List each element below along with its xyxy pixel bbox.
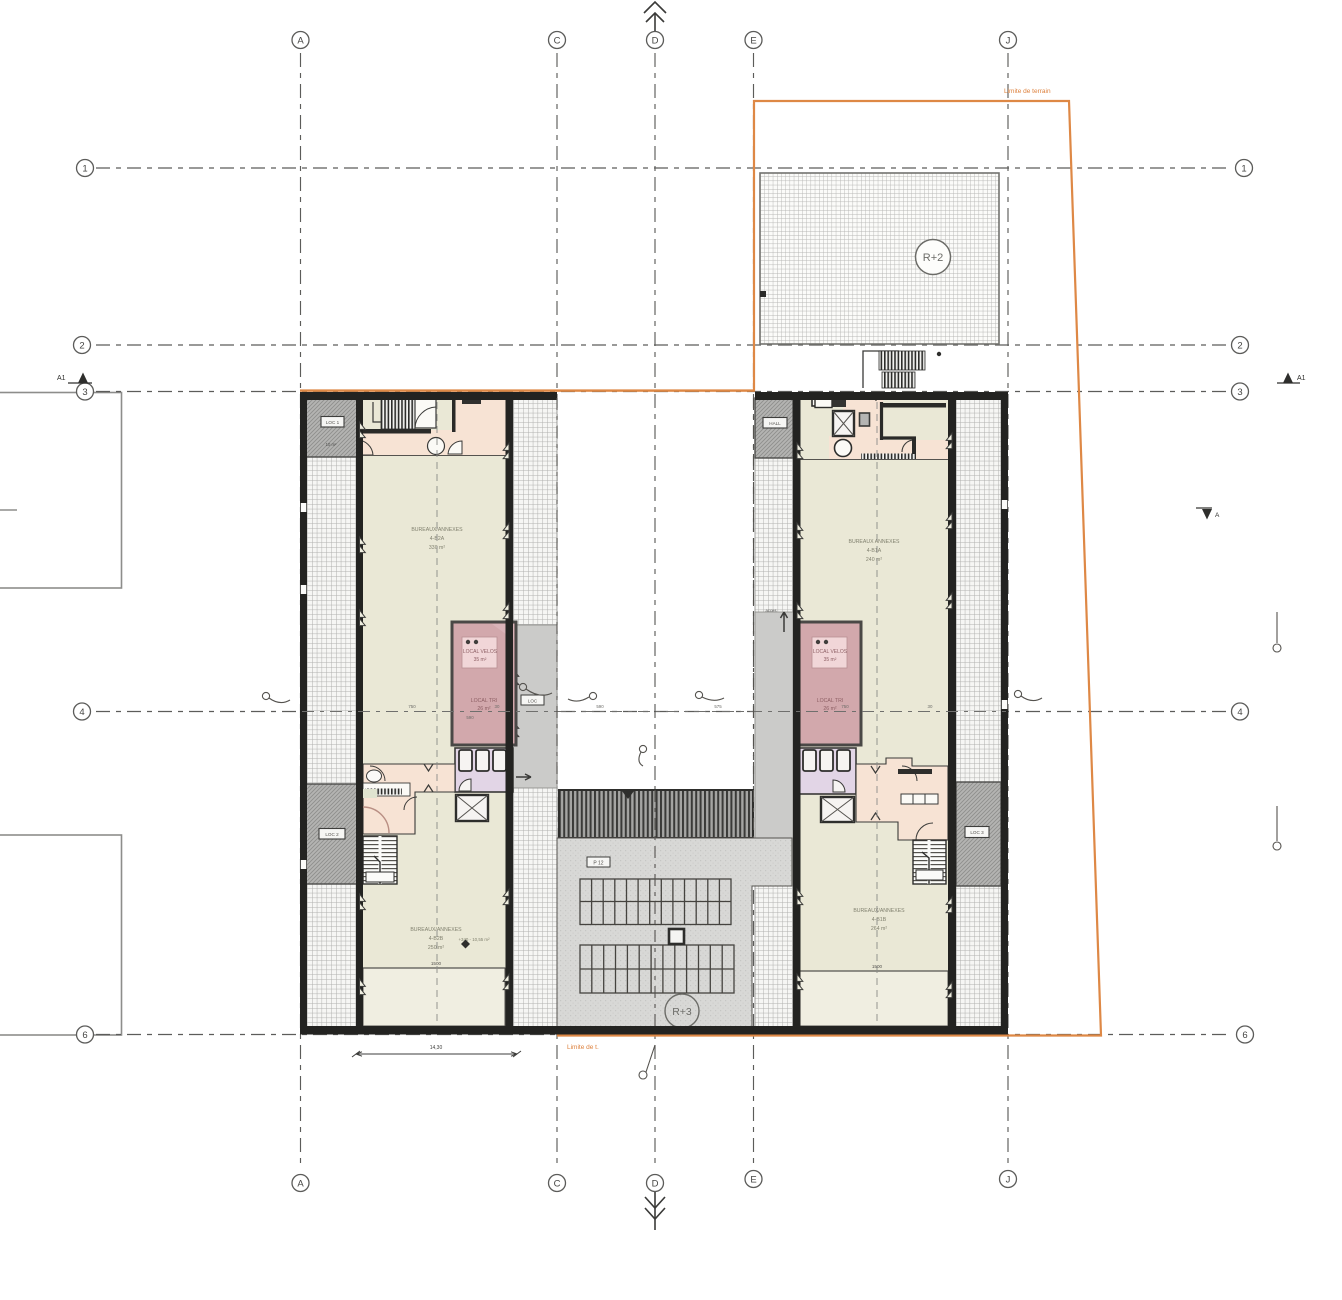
svg-text:R+2: R+2 (923, 252, 944, 264)
svg-text:14,30: 14,30 (430, 1045, 443, 1051)
svg-text:6: 6 (82, 1030, 87, 1041)
svg-text:3: 3 (1237, 387, 1242, 398)
svg-text:LOC: LOC (528, 699, 538, 704)
svg-text:acces: acces (766, 608, 777, 613)
svg-text:D: D (652, 35, 659, 46)
svg-text:250 m²: 250 m² (428, 945, 444, 951)
svg-text:A: A (1215, 512, 1220, 519)
svg-text:4: 4 (79, 707, 84, 718)
svg-text:LOCAL VELOS: LOCAL VELOS (463, 649, 498, 655)
svg-text:J: J (1006, 1174, 1011, 1185)
svg-text:BUREAUX/ANNEXES: BUREAUX/ANNEXES (410, 927, 462, 933)
svg-text:Limite de t.: Limite de t. (567, 1044, 599, 1051)
svg-text:1500: 1500 (431, 961, 442, 966)
svg-text:4: 4 (1237, 707, 1242, 718)
svg-text:590: 590 (596, 704, 604, 709)
svg-text:30: 30 (928, 704, 933, 709)
svg-text:30: 30 (495, 704, 500, 709)
svg-text:BUREAUX/ANNEXES: BUREAUX/ANNEXES (853, 908, 905, 914)
svg-text:3: 3 (82, 387, 87, 398)
svg-text:A: A (297, 35, 304, 46)
svg-text:6: 6 (1242, 1030, 1247, 1041)
svg-text:1: 1 (1241, 163, 1246, 174)
svg-text:LOCAL VELOS: LOCAL VELOS (813, 649, 848, 655)
svg-text:2: 2 (79, 340, 84, 351)
svg-text:590: 590 (466, 715, 474, 720)
svg-text:4-B2B: 4-B2B (429, 936, 444, 942)
svg-text:R+3: R+3 (672, 1006, 692, 1018)
svg-text:1: 1 (82, 163, 87, 174)
svg-text:A1: A1 (57, 375, 66, 382)
svg-text:E: E (750, 35, 756, 46)
svg-text:Limite de terrain: Limite de terrain (1004, 88, 1051, 95)
svg-text:240 m²: 240 m² (866, 557, 882, 563)
svg-text:2: 2 (1237, 340, 1242, 351)
svg-text:LOC 1: LOC 1 (326, 420, 340, 425)
svg-text:LOCAL TRI: LOCAL TRI (817, 698, 844, 704)
svg-text:750: 750 (408, 704, 416, 709)
svg-text:35 m²: 35 m² (474, 657, 487, 663)
svg-text:C: C (554, 35, 561, 46)
svg-text:D: D (652, 1178, 659, 1189)
svg-text:P 12: P 12 (593, 861, 603, 867)
svg-text:+340 - 10,55 m²: +340 - 10,55 m² (458, 937, 490, 942)
svg-text:35 m²: 35 m² (824, 657, 837, 663)
svg-text:4-B1B: 4-B1B (872, 917, 887, 923)
svg-text:E: E (750, 1174, 756, 1185)
svg-text:4-B1A: 4-B1A (867, 548, 882, 554)
svg-text:HALL: HALL (769, 421, 781, 426)
svg-text:BUREAUX ANNEXES: BUREAUX ANNEXES (848, 539, 900, 545)
svg-text:A1: A1 (1297, 375, 1306, 382)
svg-text:264 m²: 264 m² (871, 926, 887, 932)
svg-text:J: J (1006, 35, 1011, 46)
svg-text:LOC 2: LOC 2 (325, 832, 339, 837)
svg-text:LOC 3: LOC 3 (970, 830, 984, 835)
svg-text:A: A (297, 1178, 304, 1189)
svg-text:LOCAL TRI: LOCAL TRI (471, 698, 498, 704)
svg-text:750: 750 (841, 704, 849, 709)
svg-text:10 m²: 10 m² (326, 442, 337, 447)
svg-text:575: 575 (714, 704, 722, 709)
svg-text:C: C (554, 1178, 561, 1189)
